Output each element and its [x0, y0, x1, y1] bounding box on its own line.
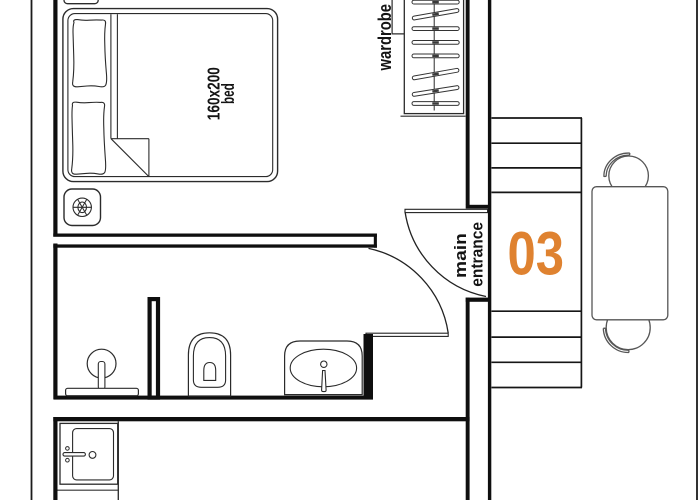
svg-text:03: 03 [508, 220, 565, 288]
svg-text:entrance: entrance [469, 222, 487, 287]
svg-text:wardrobe: wardrobe [374, 4, 395, 71]
svg-text:main: main [452, 233, 470, 278]
svg-text:bed: bed [218, 83, 238, 104]
